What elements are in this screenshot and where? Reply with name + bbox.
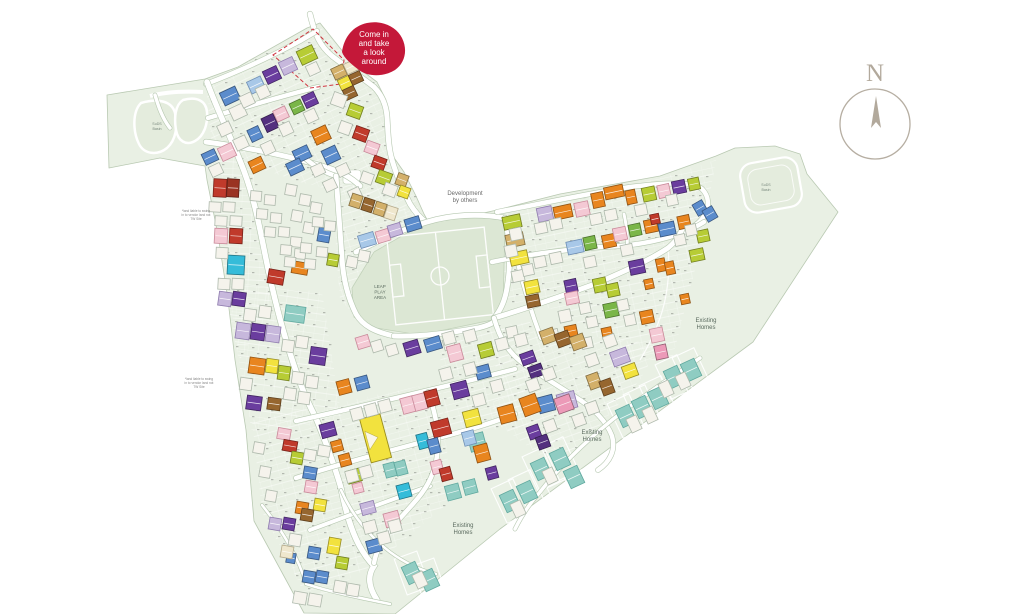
svg-text:a look: a look: [363, 48, 385, 57]
svg-text:by others: by others: [453, 198, 478, 204]
svg-text:around: around: [362, 57, 387, 66]
svg-text:Basin: Basin: [153, 127, 162, 131]
svg-text:Homes: Homes: [453, 530, 472, 536]
svg-text:Come in: Come in: [359, 30, 389, 39]
svg-text:Existing: Existing: [695, 318, 716, 324]
svg-text:AREA: AREA: [374, 295, 386, 300]
svg-text:SuDS: SuDS: [761, 183, 771, 187]
svg-text:TW Site: TW Site: [190, 217, 202, 221]
svg-text:and take: and take: [359, 39, 390, 48]
svg-text:Development: Development: [447, 191, 483, 197]
svg-text:Basin: Basin: [762, 188, 771, 192]
svg-text:TW Site: TW Site: [193, 385, 205, 389]
svg-text:Homes: Homes: [582, 437, 601, 443]
svg-text:LEAP: LEAP: [374, 284, 386, 289]
svg-text:Existing: Existing: [452, 523, 473, 529]
svg-text:SuDS: SuDS: [152, 122, 162, 126]
svg-text:N: N: [866, 60, 884, 87]
svg-text:Existing: Existing: [581, 430, 602, 436]
svg-text:Homes: Homes: [696, 325, 715, 331]
svg-text:PLAY: PLAY: [374, 290, 385, 295]
